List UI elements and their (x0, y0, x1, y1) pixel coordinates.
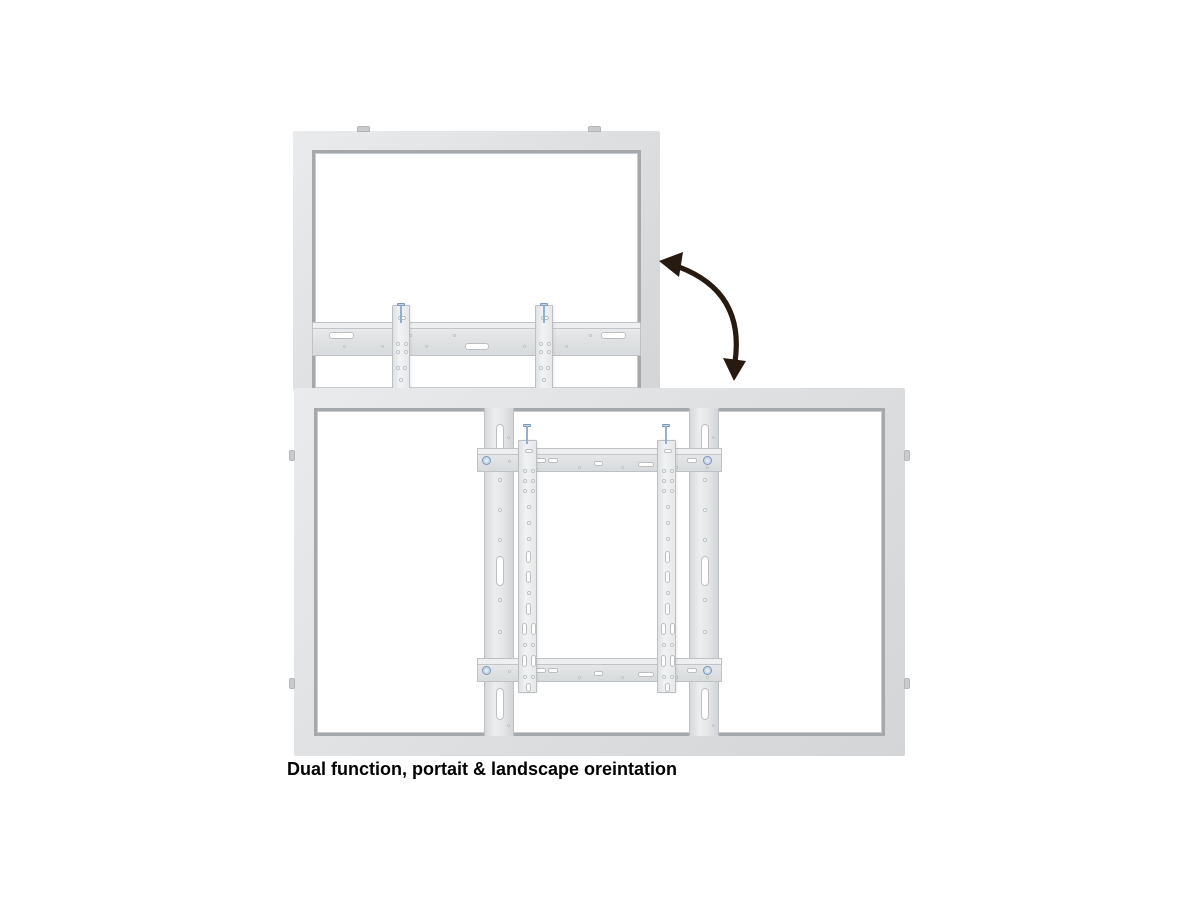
screw-shaft (400, 305, 402, 323)
mounting-hole (701, 556, 709, 586)
mounting-hole (498, 508, 502, 512)
mounting-hole (661, 623, 666, 635)
mounting-hole (670, 489, 674, 493)
mounting-hole (703, 538, 707, 542)
mounting-hole (522, 623, 527, 635)
mounting-hole (404, 350, 408, 354)
bolt-head (482, 456, 491, 465)
mounting-hole (661, 655, 666, 667)
mounting-hole (531, 643, 535, 647)
mounting-hole (526, 683, 531, 692)
mounting-hole (343, 345, 346, 348)
mounting-hole (329, 332, 354, 339)
mounting-hole (706, 676, 709, 679)
mounting-hole (526, 571, 531, 583)
mounting-hole (701, 688, 709, 720)
mounting-hole (542, 378, 546, 382)
mounting-hole (498, 630, 502, 634)
mount-tab (357, 126, 370, 132)
mounting-hole (662, 479, 666, 483)
mounting-hole (703, 598, 707, 602)
mounting-hole (578, 676, 581, 679)
mounting-hole (396, 366, 400, 370)
mounting-hole (665, 603, 670, 615)
horizontal-rail (477, 658, 722, 682)
mounting-hole (687, 458, 697, 463)
horizontal-rail (477, 448, 722, 472)
mounting-hole (664, 449, 672, 453)
mounting-hole (507, 724, 510, 727)
rail-lip (313, 323, 640, 329)
mounting-hole (666, 521, 670, 525)
mounting-hole (396, 342, 400, 346)
mounting-hole (539, 342, 543, 346)
mounting-hole (498, 598, 502, 602)
mounting-hole (703, 508, 707, 512)
display-frame-bottom-landscape (294, 388, 905, 756)
vesa-bracket (518, 440, 537, 693)
mounting-hole (523, 675, 527, 679)
mounting-hole (539, 350, 543, 354)
mounting-hole (670, 643, 674, 647)
mounting-hole (425, 345, 428, 348)
display-frame-top-landscape (293, 131, 660, 391)
mounting-hole (498, 478, 502, 482)
mounting-hole (670, 655, 675, 667)
mounting-hole (527, 505, 531, 509)
wall-plate-rail (312, 322, 641, 356)
mounting-hole (396, 350, 400, 354)
rail-lip (478, 449, 721, 455)
mounting-hole (531, 655, 536, 667)
mounting-hole (539, 366, 543, 370)
mount-tab (588, 126, 601, 132)
mounting-hole (638, 672, 654, 677)
display-frame-bottom-back-panel (314, 408, 885, 736)
mounting-hole (523, 489, 527, 493)
mounting-hole (703, 478, 707, 482)
mounting-hole (527, 537, 531, 541)
vesa-bracket (657, 440, 676, 693)
mounting-hole (381, 345, 384, 348)
mounting-hole (526, 551, 531, 563)
mounting-hole (666, 505, 670, 509)
mounting-hole (666, 537, 670, 541)
mounting-hole (589, 334, 592, 337)
screw (539, 303, 549, 323)
mount-tab (904, 450, 910, 461)
mounting-hole (536, 668, 546, 673)
bolt-head (703, 456, 712, 465)
mounting-hole (670, 623, 675, 635)
mount-tab (289, 450, 295, 461)
display-frame-top-back-panel (312, 150, 641, 391)
mounting-hole (706, 466, 709, 469)
mounting-hole (666, 591, 670, 595)
mounting-hole (594, 461, 603, 466)
mounting-hole (662, 489, 666, 493)
mounting-hole (670, 479, 674, 483)
mounting-hole (525, 449, 533, 453)
screw-shaft (543, 305, 545, 323)
mounting-hole (548, 668, 558, 673)
mounting-hole (523, 643, 527, 647)
mounting-hole (404, 342, 408, 346)
rail-lip (478, 659, 721, 665)
mounting-hole (531, 469, 535, 473)
mounting-hole (403, 366, 407, 370)
mounting-hole (670, 675, 674, 679)
screw-shaft (526, 426, 528, 444)
mounting-hole (508, 670, 511, 673)
mounting-hole (496, 688, 504, 720)
mounting-hole (399, 378, 403, 382)
mount-tab (904, 678, 910, 689)
screw (396, 303, 406, 323)
mounting-hole (621, 466, 624, 469)
rotation-arrow-icon (648, 240, 753, 382)
mounting-hole (523, 345, 526, 348)
mounting-hole (453, 334, 456, 337)
mounting-hole (621, 676, 624, 679)
mounting-hole (548, 458, 558, 463)
product-illustration: Dual function, portait & landscape orein… (0, 0, 1200, 900)
mounting-hole (526, 603, 531, 615)
mounting-hole (531, 623, 536, 635)
screw-shaft (665, 426, 667, 444)
mounting-hole (536, 458, 546, 463)
mounting-hole (547, 342, 551, 346)
mounting-hole (665, 571, 670, 583)
mounting-hole (703, 630, 707, 634)
mounting-hole (523, 479, 527, 483)
mounting-hole (594, 671, 603, 676)
bolt-head (482, 666, 491, 675)
mounting-hole (531, 489, 535, 493)
mounting-hole (687, 668, 697, 673)
mount-tab (289, 678, 295, 689)
mounting-hole (496, 556, 504, 586)
screw (661, 424, 671, 444)
mounting-hole (522, 655, 527, 667)
mounting-hole (662, 643, 666, 647)
mounting-hole (465, 343, 489, 350)
mounting-hole (527, 521, 531, 525)
mounting-hole (638, 462, 654, 467)
mounting-hole (712, 436, 715, 439)
mounting-hole (665, 551, 670, 563)
mounting-hole (507, 436, 510, 439)
mounting-hole (670, 469, 674, 473)
mounting-hole (565, 345, 568, 348)
mounting-hole (662, 675, 666, 679)
mounting-hole (523, 469, 527, 473)
mounting-hole (531, 675, 535, 679)
mounting-hole (712, 724, 715, 727)
mounting-hole (662, 469, 666, 473)
screw (522, 424, 532, 444)
mounting-hole (527, 591, 531, 595)
mounting-hole (498, 538, 502, 542)
mounting-hole (601, 332, 626, 339)
mounting-hole (531, 479, 535, 483)
mounting-hole (578, 466, 581, 469)
mounting-hole (546, 366, 550, 370)
mounting-hole (547, 350, 551, 354)
caption-text: Dual function, portait & landscape orein… (287, 759, 677, 780)
mounting-hole (665, 683, 670, 692)
bolt-head (703, 666, 712, 675)
mounting-hole (508, 460, 511, 463)
